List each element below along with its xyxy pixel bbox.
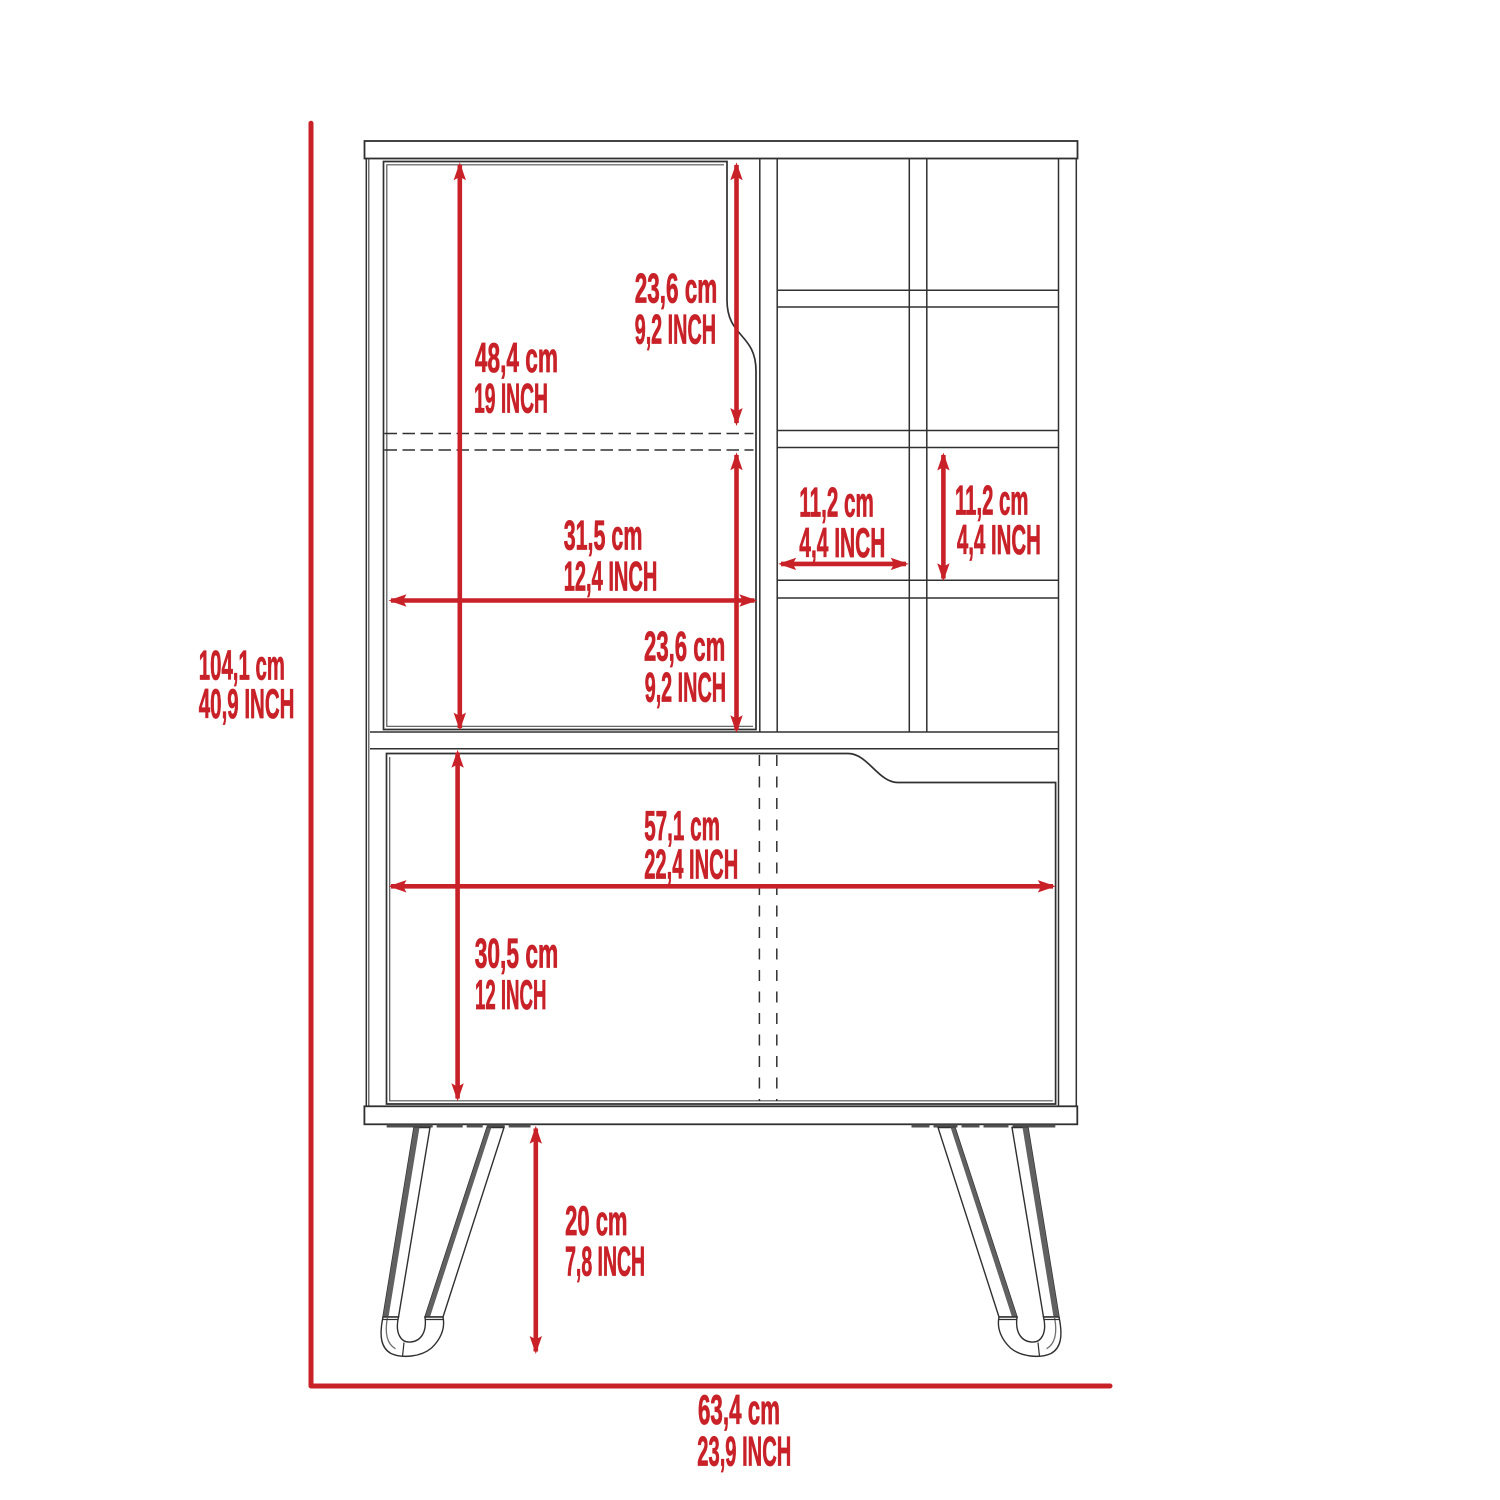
svg-text:9,2 INCH: 9,2 INCH <box>645 663 726 710</box>
svg-text:4,4 INCH: 4,4 INCH <box>957 516 1041 563</box>
svg-text:4,4 INCH: 4,4 INCH <box>799 519 885 566</box>
svg-text:63,4 cm: 63,4 cm <box>698 1386 780 1433</box>
svg-text:40,9 INCH: 40,9 INCH <box>199 680 295 727</box>
svg-text:19 INCH: 19 INCH <box>474 374 548 421</box>
svg-text:23,9 INCH: 23,9 INCH <box>697 1427 791 1474</box>
svg-text:30,5 cm: 30,5 cm <box>475 930 559 977</box>
svg-text:22,4 INCH: 22,4 INCH <box>644 841 738 888</box>
svg-text:9,2 INCH: 9,2 INCH <box>635 305 716 352</box>
svg-text:12,4 INCH: 12,4 INCH <box>564 552 658 599</box>
svg-text:7,8 INCH: 7,8 INCH <box>565 1237 645 1284</box>
svg-text:12 INCH: 12 INCH <box>475 971 546 1018</box>
